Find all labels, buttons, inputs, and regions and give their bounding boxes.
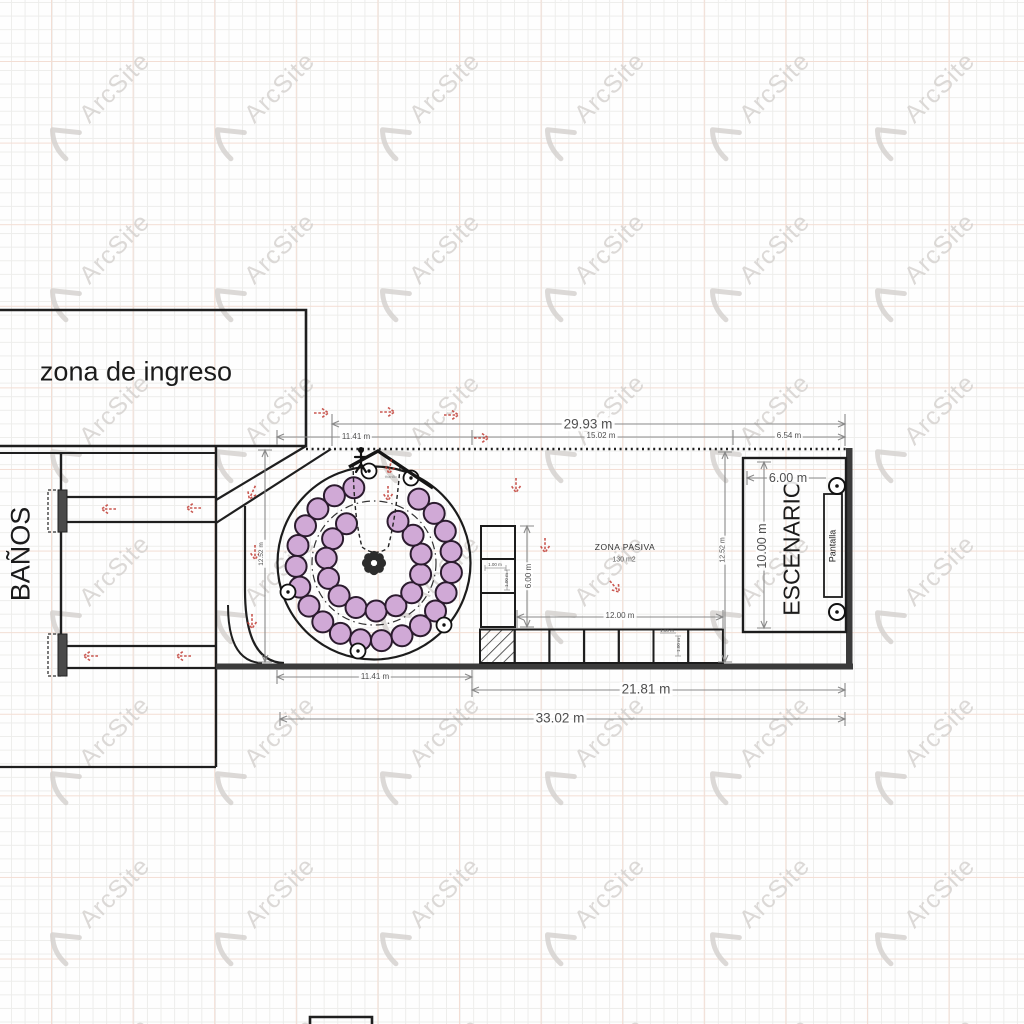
room-label-ingreso: zona de ingreso	[40, 359, 232, 386]
dim-2181: 21.81 m	[620, 682, 673, 696]
dim-100-d: 1.00 m	[677, 638, 682, 652]
dim-1200: 12.00 m	[604, 612, 637, 620]
floor-plan-canvas: ArcSiteArcSiteArcSiteArcSiteArcSiteArcSi…	[0, 0, 1024, 1024]
entry-note: thanBc	[385, 475, 397, 479]
dim-1141-bottom: 11.41 m	[359, 673, 391, 681]
dim-1252-right: 12.52 m	[720, 535, 727, 564]
dim-1141-top: 11.41 m	[340, 433, 372, 441]
room-label-escenario: ESCENARIO	[781, 480, 804, 615]
dim-100-a: 1.00 m	[488, 563, 502, 568]
zone-label-pasiva: ZONA PASIVA	[595, 543, 655, 552]
screen-label: Pantalla	[829, 530, 838, 563]
dim-100-c: 1.00 m	[660, 629, 674, 634]
dim-100-b: 1.00 m	[505, 573, 510, 587]
dim-1252-left: 12.52 m	[259, 540, 266, 568]
dim-1502: 15.02 m	[585, 432, 618, 440]
dim-600-stage: 6.00 m	[767, 472, 809, 485]
room-label-banos: BAÑOS	[8, 507, 35, 602]
dim-3302: 33.02 m	[534, 711, 587, 725]
zone-area-pasiva: 130 m2	[612, 557, 635, 564]
dim-654: 6.54 m	[775, 432, 803, 440]
labels-layer: zona de ingreso BAÑOS ESCENARIO Pantalla…	[0, 0, 1024, 1024]
dim-600-stack: 6.00 m	[525, 562, 533, 590]
dim-1000: 10.00 m	[756, 521, 769, 570]
dim-2993: 29.93 m	[562, 417, 615, 431]
